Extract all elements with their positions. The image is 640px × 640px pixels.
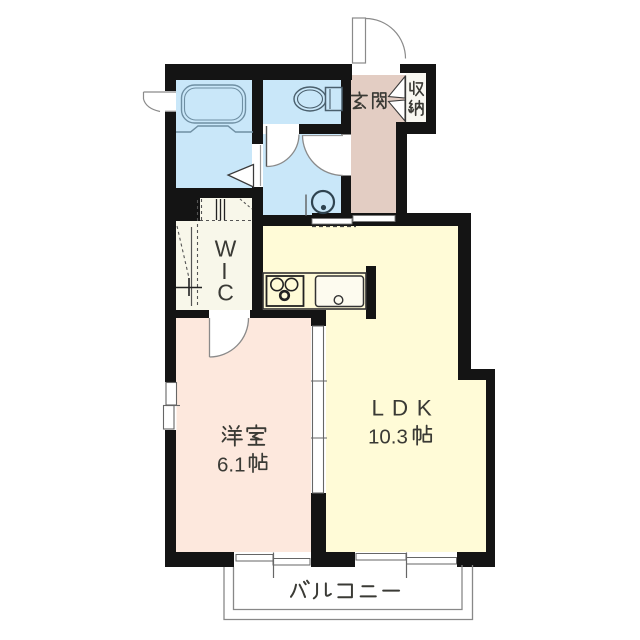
svg-text:L D K: L D K <box>372 396 433 421</box>
svg-text:6.1: 6.1 <box>217 454 246 477</box>
svg-text:10.3: 10.3 <box>368 426 408 449</box>
svg-text:C: C <box>217 280 234 306</box>
